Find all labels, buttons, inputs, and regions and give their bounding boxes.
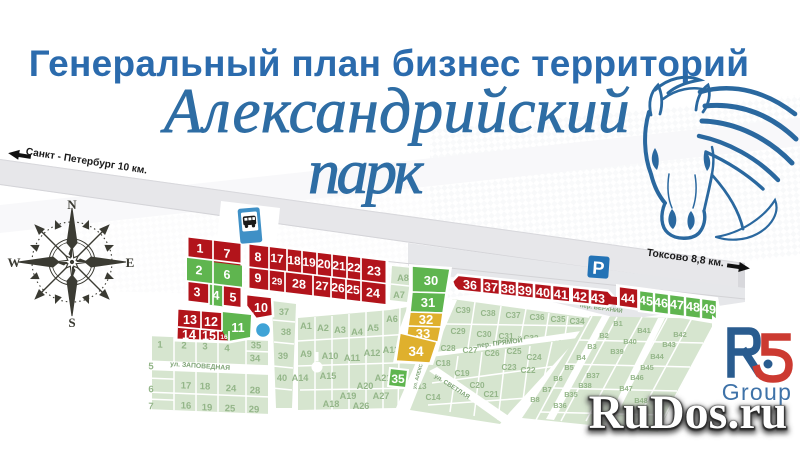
svg-text:C26: C26 [484,349,499,358]
svg-text:26: 26 [331,280,345,296]
svg-text:4: 4 [224,343,230,354]
svg-text:A26: A26 [353,401,370,411]
svg-text:C28: C28 [440,344,455,353]
svg-text:B3: B3 [587,342,596,351]
svg-text:A10: A10 [322,351,339,361]
svg-text:C27: C27 [462,346,477,355]
svg-text:A20: A20 [357,381,374,391]
svg-text:11: 11 [231,321,244,335]
svg-text:6: 6 [148,384,153,395]
svg-text:A14: A14 [292,373,310,383]
svg-text:1: 1 [157,339,163,350]
svg-text:B43: B43 [662,340,676,349]
svg-text:C37: C37 [505,311,520,320]
svg-text:31: 31 [421,295,435,310]
svg-text:23: 23 [367,263,381,279]
svg-text:A9: A9 [300,349,312,359]
svg-text:A19: A19 [340,391,357,401]
svg-text:3: 3 [194,285,201,300]
svg-text:13: 13 [183,313,197,327]
svg-text:B45: B45 [640,363,654,372]
svg-text:B42: B42 [673,330,687,339]
svg-text:B39: B39 [610,347,624,356]
svg-text:C29: C29 [450,327,465,336]
svg-text:W: W [8,255,21,270]
svg-text:B1: B1 [613,319,622,328]
svg-text:18: 18 [287,253,301,269]
svg-text:B7: B7 [542,385,551,394]
svg-text:22: 22 [347,260,361,276]
svg-text:6: 6 [224,267,231,282]
svg-text:10: 10 [254,301,268,315]
svg-text:15: 15 [202,329,216,343]
svg-text:C21: C21 [483,390,498,399]
svg-text:46: 46 [654,295,668,311]
svg-text:B37: B37 [586,371,600,380]
svg-text:C18: C18 [435,359,450,368]
svg-text:28: 28 [292,276,306,292]
svg-text:C24: C24 [526,353,541,362]
svg-text:8: 8 [255,250,262,265]
svg-text:5: 5 [148,361,154,372]
svg-text:A7: A7 [393,290,405,300]
svg-text:A4: A4 [351,327,364,337]
svg-text:17: 17 [270,251,284,267]
svg-text:парк: парк [308,136,425,207]
svg-text:25: 25 [225,403,236,414]
svg-text:C38: C38 [480,309,495,318]
svg-text:B2: B2 [599,331,608,340]
svg-text:30: 30 [424,273,438,288]
svg-text:RuDos.ru: RuDos.ru [589,386,788,439]
svg-text:B8: B8 [530,395,539,404]
svg-text:37: 37 [484,280,498,295]
svg-text:C36: C36 [529,313,544,322]
svg-text:2: 2 [196,263,203,278]
svg-text:A6: A6 [386,314,398,324]
svg-text:39: 39 [518,283,532,298]
svg-text:28: 28 [250,385,261,396]
svg-text:C34: C34 [569,317,584,326]
svg-text:41: 41 [554,287,568,302]
svg-text:7: 7 [148,401,153,412]
svg-text:C25: C25 [506,347,521,356]
svg-text:18: 18 [200,381,211,392]
svg-text:29: 29 [249,404,260,415]
svg-text:B35: B35 [564,390,578,399]
svg-text:38: 38 [281,327,291,337]
svg-text:B44: B44 [650,352,664,361]
svg-text:14: 14 [182,328,196,342]
svg-text:16: 16 [220,334,228,341]
svg-text:19: 19 [202,402,213,413]
svg-text:C39: C39 [455,306,470,315]
svg-text:12: 12 [204,315,218,329]
svg-text:A3: A3 [334,325,346,335]
svg-text:B41: B41 [637,326,651,335]
svg-text:B36: B36 [553,401,567,410]
svg-text:A15: A15 [320,371,337,381]
svg-text:S: S [68,315,75,330]
svg-text:44: 44 [621,291,635,307]
svg-text:40: 40 [277,373,287,383]
svg-text:A12: A12 [364,348,381,358]
svg-text:C19: C19 [454,369,469,378]
svg-text:47: 47 [670,297,684,313]
svg-text:32: 32 [419,312,433,327]
svg-text:35: 35 [251,340,262,351]
svg-text:C30: C30 [476,330,491,339]
svg-text:29: 29 [272,276,283,288]
svg-text:40: 40 [536,285,550,300]
svg-text:38: 38 [501,281,515,296]
svg-text:42: 42 [573,289,587,304]
svg-text:36: 36 [463,277,477,292]
svg-text:C20: C20 [469,381,484,390]
svg-text:20: 20 [317,256,331,272]
svg-text:9: 9 [255,271,262,286]
svg-text:N: N [67,197,77,212]
svg-text:21: 21 [332,258,346,274]
svg-text:24: 24 [226,383,237,394]
svg-text:27: 27 [315,278,329,294]
svg-text:35: 35 [391,372,405,386]
svg-text:A11: A11 [344,353,360,363]
svg-text:45: 45 [639,293,653,309]
svg-text:25: 25 [346,282,360,298]
svg-text:C23: C23 [501,363,516,372]
svg-text:C14: C14 [425,393,440,402]
svg-text:17: 17 [181,380,192,391]
svg-text:P: P [592,258,605,279]
svg-text:34: 34 [408,344,424,359]
svg-text:2: 2 [181,340,186,351]
svg-text:48: 48 [686,299,700,315]
svg-text:A5: A5 [367,323,379,333]
svg-text:A18: A18 [323,399,340,409]
svg-text:7: 7 [224,246,231,261]
svg-text:B5: B5 [564,363,573,372]
svg-text:24: 24 [366,285,380,301]
svg-text:37: 37 [279,307,289,317]
svg-text:E: E [126,255,135,270]
svg-text:A2: A2 [317,323,329,333]
svg-text:19: 19 [302,255,316,271]
svg-text:C35: C35 [550,315,565,324]
svg-text:4: 4 [213,288,220,303]
svg-text:39: 39 [278,351,288,361]
svg-text:34: 34 [250,353,261,364]
svg-text:A1: A1 [300,321,312,331]
svg-text:A27: A27 [373,391,390,401]
svg-text:16: 16 [181,400,192,411]
svg-text:B46: B46 [630,373,644,382]
svg-text:5: 5 [230,290,237,305]
svg-text:B6: B6 [553,374,562,383]
svg-text:A8: A8 [397,273,409,283]
svg-text:1: 1 [197,241,204,256]
svg-text:B40: B40 [623,337,637,346]
svg-text:43: 43 [591,291,605,306]
svg-text:49: 49 [702,301,716,317]
svg-text:B4: B4 [576,353,586,362]
svg-text:C22: C22 [520,366,535,375]
